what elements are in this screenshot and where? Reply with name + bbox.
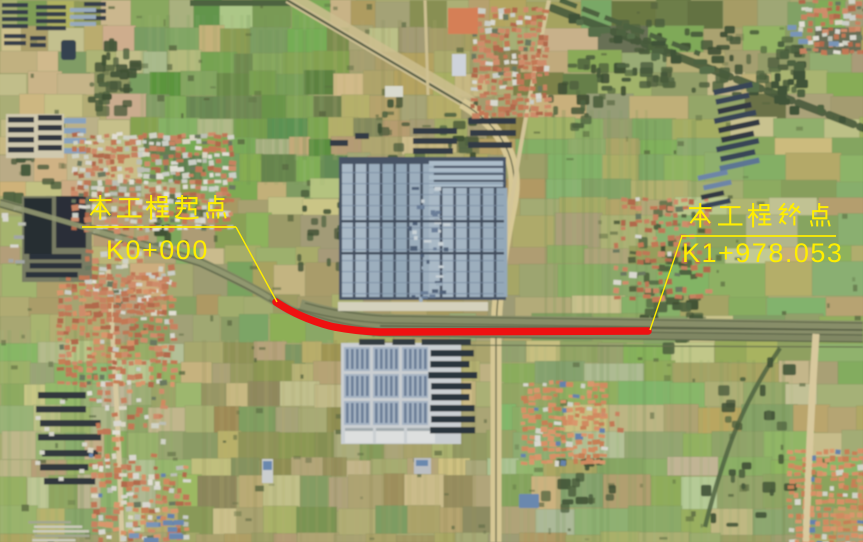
svg-text:K0+000: K0+000 — [106, 235, 209, 265]
svg-text:K1+978.053: K1+978.053 — [682, 238, 843, 268]
